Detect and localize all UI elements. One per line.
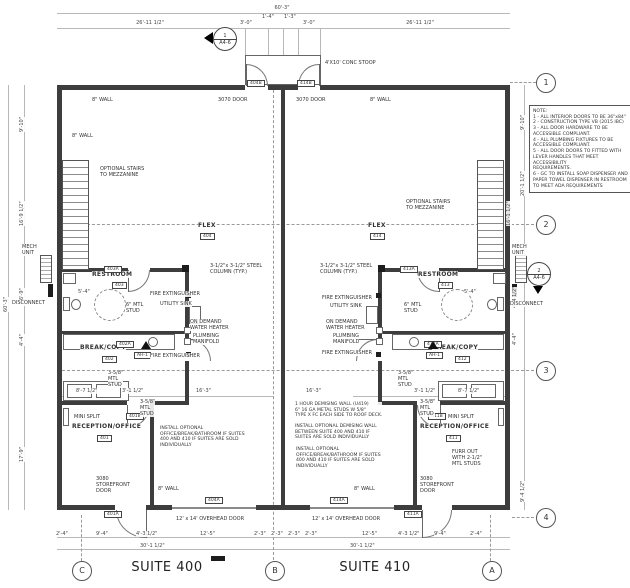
dim-line-bottom <box>57 537 510 538</box>
wall-bottom-3 <box>256 505 310 510</box>
grid-bubble-b: B <box>265 561 285 581</box>
dim-int-6: 8'-7 1/2" <box>458 388 479 394</box>
dim-bot-10: 4'-3 1/2" <box>398 531 419 537</box>
wall-break-bottom-left <box>150 401 189 405</box>
dim-int-3: 16'-3" <box>196 388 211 394</box>
dim-left-overall: 60'-3" <box>3 297 9 312</box>
room-restroom-410: RESTROOM <box>418 271 458 278</box>
grid-bubble-1: 1 <box>536 73 556 93</box>
tag-room-412: 412 <box>455 356 470 363</box>
grid-line-a <box>490 515 491 561</box>
section-marker-1-sheet: A4-6 <box>214 39 236 46</box>
tag-door-403a: 403A <box>104 266 122 273</box>
overhead-door-right <box>310 507 394 509</box>
dim-stoop-4: 3'-0" <box>303 20 315 26</box>
label-water-heater-left: ON DEMAND WATER HEATER <box>190 319 229 331</box>
tag-room-403: 403 <box>112 282 127 289</box>
label-column-left: 3-1/2"x 3-1/2" STEEL COLUMN (TYP.) <box>210 263 262 275</box>
dim-line-right <box>524 85 525 510</box>
dim-left-1: 9'-10" <box>19 117 25 132</box>
wall-block-left-right2 <box>378 361 382 405</box>
section-marker-2-sheet: A4-6 <box>528 274 550 281</box>
wall-right <box>505 85 510 510</box>
mini-split-left <box>63 408 69 426</box>
toilet-tank-left <box>63 297 70 311</box>
label-3070-right: 3070 DOOR <box>296 97 326 103</box>
label-disconnect-left: DISCONNECT <box>12 300 45 306</box>
label-stairs-right: OPTIONAL STAIRS TO MEZZANINE <box>406 199 450 211</box>
note-optional-office-right: INSTALL OPTIONAL OFFICE/BREAK/BATHROOM I… <box>296 447 381 469</box>
ext-line <box>245 28 246 55</box>
dim-bot-30-left: 30'-1 1/2" <box>140 543 165 549</box>
dim-right-3: 16'-1 1/2" <box>506 201 512 226</box>
dim-bot-8: 2'-3" <box>305 531 317 537</box>
suite-400-title: SUITE 400 <box>112 560 222 575</box>
room-reception-410: RECEPTION/OFFICE <box>420 423 489 430</box>
label-storefront-left: 3080 STOREFRONT DOOR <box>96 476 130 494</box>
dim-ada-right: 5'-4" <box>464 289 476 295</box>
dim-stoop-1: 3'-0" <box>240 20 252 26</box>
dim-bot-9: 12'-5" <box>362 531 377 537</box>
wall-bottom-4 <box>394 505 422 510</box>
toilet-tank-right <box>497 297 504 311</box>
wall-bottom-2 <box>146 505 172 510</box>
wall-left <box>57 85 62 510</box>
tag-door-404b: 404B <box>247 80 265 87</box>
wall-block-right-left2 <box>185 361 189 405</box>
wall-bottom-5 <box>452 505 510 510</box>
label-disconnect-right: DISCONNECT <box>510 301 543 307</box>
suite-410-title: SUITE 410 <box>320 560 430 575</box>
wall-bottom-1 <box>57 505 115 510</box>
room-flex-410: FLEX <box>368 222 386 229</box>
fire-extinguisher-right-2 <box>376 352 381 357</box>
dim-int-1: 8'-7 1/2" <box>76 388 97 394</box>
sink-right-restroom <box>493 273 506 284</box>
tag-room-411: 411 <box>446 435 461 442</box>
mech-unit-right <box>515 255 527 283</box>
label-utility-sink-right: UTILITY SINK <box>330 303 362 309</box>
grid-line-4 <box>512 517 534 518</box>
tag-door-401a: 401A <box>104 511 122 518</box>
grid-bubble-3: 3 <box>536 361 556 381</box>
wall-break-bottom-right <box>378 401 417 405</box>
grid-bubble-a: A <box>482 561 502 581</box>
label-manifold-right: PLUMBING MANIFOLD <box>333 333 359 345</box>
dim-left-3: 6'-9" <box>19 288 25 300</box>
dim-int-4: 16'-3" <box>306 388 321 394</box>
label-oh-door-right: 12' x 14' OVERHEAD DOOR <box>312 516 380 522</box>
entry-door-leaf-right <box>319 64 320 86</box>
stairs-left <box>62 160 89 270</box>
grid-bubble-4: 4 <box>536 508 556 528</box>
section-marker-2-arrow-icon <box>533 286 543 294</box>
mini-split-right <box>498 408 504 426</box>
dim-top-right: 26'-11 1/2" <box>400 20 440 26</box>
mech-unit-left <box>40 255 52 283</box>
tag-door-411a: 411A <box>404 511 422 518</box>
room-reception-400: RECEPTION/OFFICE <box>72 423 141 430</box>
tag-door-413a: 413A <box>400 266 418 273</box>
label-mech-unit-left: MECH UNIT <box>22 244 37 256</box>
dim-ada-left: 5'-4" <box>78 289 90 295</box>
grid-line-1 <box>510 82 536 83</box>
wall-reception-left-right <box>413 401 417 505</box>
grid-line-b <box>273 90 274 560</box>
dim-left-4: 4'-4" <box>19 334 25 346</box>
dim-right-5: 4'-4" <box>512 333 518 345</box>
dim-top-left: 26'-11 1/2" <box>130 20 170 26</box>
label-mech-unit-right: MECH UNIT <box>512 244 527 256</box>
grid-bubble-c: C <box>72 561 92 581</box>
section-marker-1: 1 A4-6 <box>213 27 237 51</box>
general-notes: NOTE: 1 - ALL INTERIOR DOORS TO BE 36"x8… <box>529 105 630 193</box>
label-oh-door-left: 12' x 14' OVERHEAD DOOR <box>176 516 244 522</box>
tag-room-402: 402 <box>102 356 117 363</box>
label-water-heater-right: ON DEMAND WATER HEATER <box>326 319 365 331</box>
ah1-symbol-left <box>141 341 151 349</box>
wall-top-left <box>57 85 245 90</box>
label-8wall-top-right: 8" WALL <box>370 97 391 103</box>
ext-line <box>268 28 269 55</box>
sink-left-restroom <box>63 273 76 284</box>
plumbing-manifold-left <box>184 338 191 345</box>
label-6mtl-right: 6" MTL STUD <box>404 302 421 314</box>
demising-wall <box>281 85 285 505</box>
dim-right-1: 9'-10" <box>520 115 526 130</box>
label-6mtl-left: 6" MTL STUD <box>126 302 143 314</box>
label-358mtl-left: 3-5/8" MTL STUD <box>108 370 123 388</box>
label-mini-split-left: MINI SPLIT <box>74 414 100 420</box>
label-storefront-right: 3080 STOREFRONT DOOR <box>420 476 454 494</box>
grid-line-2 <box>62 224 534 225</box>
wall-top-right <box>320 85 510 90</box>
tag-door-404a: 404A <box>205 497 223 504</box>
tag-door-414b: 414B <box>297 80 315 87</box>
dim-bot-3: 4'-3 1/2" <box>136 531 157 537</box>
fire-extinguisher-right-1 <box>376 293 381 298</box>
label-8wall-top-left: 8" WALL <box>92 97 113 103</box>
dim-right-6: 9'-4 1/2" <box>520 481 526 502</box>
grid-bubble-2: 2 <box>536 215 556 235</box>
ada-circle-left <box>94 289 126 321</box>
dim-bot-4: 12'-5" <box>200 531 215 537</box>
plumbing-manifold-right <box>376 338 383 345</box>
tag-room-401: 401 <box>97 435 112 442</box>
dim-int-2: 3'-1 1/2" <box>122 388 143 394</box>
note-optional-demising: INSTALL OPTIONAL DEMISING WALL BETWEEN S… <box>295 424 377 441</box>
grid-line-c <box>81 515 82 561</box>
tag-door-402a: 402A <box>116 341 134 348</box>
room-flex-400: FLEX <box>198 222 216 229</box>
dim-bot-12: 2'-4" <box>470 531 482 537</box>
label-358mtl-right-2: 3-5/8" MTL STUD <box>420 399 435 417</box>
dim-stoop-2: 1'-4" <box>262 14 274 20</box>
water-heater-right <box>376 327 383 334</box>
label-fire-ext-right-2: FIRE EXTINGUISHER <box>322 350 372 356</box>
label-3070-left: 3070 DOOR <box>218 97 248 103</box>
ext-line <box>320 28 321 55</box>
label-358mtl-left-2: 3-5/8" MTL STUD <box>140 399 155 417</box>
dim-bot-6: 2'-3" <box>271 531 283 537</box>
wall-reception-top-left <box>62 401 127 405</box>
dim-bot-7: 2'-3" <box>288 531 300 537</box>
toilet-bowl-right <box>487 299 497 310</box>
dim-int-5: 3'-1 1/2" <box>414 388 435 394</box>
label-fire-ext-right-1: FIRE EXTINGUISHER <box>322 295 372 301</box>
label-stoop: 4'X10' CONC STOOP <box>325 60 376 66</box>
label-manifold-left: PLUMBING MANIFOLD <box>193 333 219 345</box>
label-utility-sink-left: UTILITY SINK <box>160 301 192 307</box>
tag-room-414: 414 <box>370 233 385 240</box>
overhead-door-left <box>172 507 256 509</box>
grid-line-3 <box>62 370 534 371</box>
dim-bot-30-right: 30'-1 1/2" <box>350 543 375 549</box>
tag-ah1-right: AH-1 <box>426 352 443 359</box>
counter-sink-right <box>409 337 419 347</box>
dim-bot-11: 9'-4" <box>434 531 446 537</box>
dim-bot-1: 2'-4" <box>56 531 68 537</box>
label-8wall-bot-left: 8" WALL <box>158 486 179 492</box>
storefront-door-leaf-right <box>422 510 423 538</box>
section-marker-2: 2 A4-6 <box>527 262 551 286</box>
ext-line <box>298 28 299 55</box>
section-marker-1-arrow-icon <box>204 32 213 44</box>
dim-stoop-3: 1'-3" <box>284 14 296 20</box>
dim-left-2: 16'-9 1/2" <box>19 201 25 226</box>
tag-room-413: 413 <box>438 282 453 289</box>
tag-room-404: 404 <box>200 233 215 240</box>
disconnect-left <box>48 284 53 297</box>
dim-top-overall: 60'-3" <box>262 5 302 11</box>
note-demising-wall: 1 HOUR DEMISING WALL (U419) 6" 16 GA MET… <box>295 402 382 419</box>
steel-column-left <box>182 265 189 272</box>
stairs-right <box>477 160 504 270</box>
wall-reception-top-right <box>440 401 505 405</box>
utility-sink-right <box>366 306 378 324</box>
dim-right-2: 20'-1 1/2" <box>520 171 526 196</box>
label-8wall-left: 8" WALL <box>72 133 93 139</box>
floor-plan-sheet: 1 A4-6 2 A4-6 1 2 3 4 C B A NOTE: 1 - AL… <box>0 0 630 588</box>
dim-bot-2: 9'-4" <box>96 531 108 537</box>
dim-bot-5: 2'-3" <box>254 531 266 537</box>
ext-line <box>283 28 284 55</box>
toilet-bowl-left <box>71 299 81 310</box>
label-stairs-left: OPTIONAL STAIRS TO MEZZANINE <box>100 166 144 178</box>
label-mini-split-right: MINI SPLIT <box>448 414 474 420</box>
tag-ah1-left: AH-1 <box>134 352 151 359</box>
steel-column-right <box>378 265 385 272</box>
label-column-right: 3-1/2"x 3-1/2" STEEL COLUMN (TYP.) <box>320 263 372 275</box>
label-fire-ext-left-2: FIRE EXTINGUISHER <box>150 353 200 359</box>
tag-door-414a: 414A <box>330 497 348 504</box>
label-8wall-bot-right: 8" WALL <box>354 486 375 492</box>
label-fire-ext-left-1: FIRE EXTINGUISHER <box>150 291 200 297</box>
ah1-symbol-right <box>428 341 438 349</box>
label-furr-out: FURR OUT WITH 2-1/2" MTL STUDS <box>452 449 482 467</box>
note-optional-office-left: INSTALL OPTIONAL OFFICE/BREAK/BATHROOM I… <box>160 426 245 448</box>
dim-left-5: 17'-9" <box>19 447 25 462</box>
dim-line-bottom-outer <box>57 549 510 550</box>
label-358mtl-right: 3-5/8" MTL STUD <box>398 370 413 388</box>
